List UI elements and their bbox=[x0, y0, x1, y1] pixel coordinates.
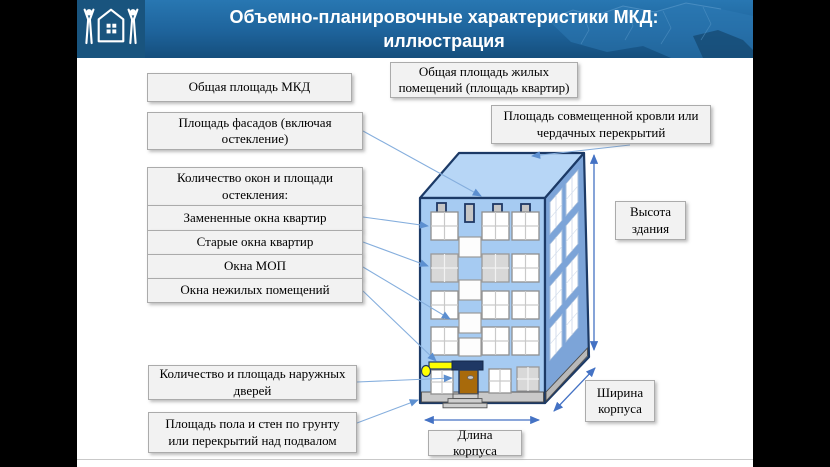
callout-windows-replaced: Замененные окна квартир bbox=[147, 205, 363, 231]
side-windows bbox=[550, 170, 578, 360]
entrance-canopy bbox=[452, 361, 483, 370]
callout-building-height: Высота здания bbox=[615, 201, 686, 240]
callout-windows-common: Окна МОП bbox=[147, 254, 363, 279]
callout-total-area: Общая площадь МКД bbox=[147, 73, 352, 102]
callout-living-area: Общая площадь жилых помещений (площадь к… bbox=[390, 62, 578, 98]
callout-entrance-doors: Количество и площадь наружных дверей bbox=[148, 365, 357, 400]
attic-windows bbox=[437, 203, 530, 222]
callout-roof-area: Площадь совмещенной кровли или чердачных… bbox=[491, 105, 711, 144]
stairwell-windows bbox=[459, 237, 481, 356]
callout-windows-nonresidential: Окна нежилых помещений bbox=[147, 278, 363, 303]
slide-title-line2: иллюстрация bbox=[383, 29, 505, 53]
connector-replaced-windows bbox=[363, 217, 428, 226]
building-side-facade bbox=[545, 153, 589, 403]
connector-old-windows bbox=[363, 242, 428, 266]
connector-roof bbox=[532, 145, 630, 156]
entrance-steps bbox=[443, 394, 487, 408]
callout-body-width: Ширина корпуса bbox=[585, 380, 655, 422]
slide-bottom-edge bbox=[77, 459, 753, 460]
letterbox-left bbox=[0, 0, 77, 467]
slide-title-line1: Объемно-планировочные характеристики МКД… bbox=[230, 5, 659, 29]
front-windows-new bbox=[431, 212, 539, 394]
callout-body-length: Длина корпуса bbox=[428, 430, 522, 456]
connector-ground-floor bbox=[357, 400, 418, 423]
entrance-sign bbox=[429, 362, 453, 369]
callout-windows-header: Количество окон и площади остекления: bbox=[147, 167, 363, 206]
building-roof bbox=[420, 153, 584, 198]
connector-common-windows bbox=[363, 267, 450, 319]
header-banner: Объемно-планировочные характеристики МКД… bbox=[77, 0, 753, 58]
presentation-slide: Объемно-планировочные характеристики МКД… bbox=[0, 0, 830, 467]
logo-house-with-people-icon bbox=[77, 0, 145, 58]
connector-facade bbox=[363, 131, 481, 196]
building-front-facade bbox=[420, 198, 545, 403]
callout-facade-area: Площадь фасадов (включая остекление) bbox=[147, 112, 363, 150]
door-handle bbox=[468, 376, 474, 380]
slide-title: Объемно-планировочные характеристики МКД… bbox=[145, 0, 743, 58]
front-windows-old bbox=[431, 254, 539, 391]
letterbox-right bbox=[753, 0, 830, 467]
connector-nonresidential-windows bbox=[363, 291, 436, 361]
entrance-door bbox=[459, 370, 478, 394]
entrance bbox=[422, 361, 488, 408]
building-plinth-side bbox=[546, 348, 588, 401]
building-outline bbox=[420, 153, 589, 403]
building-plinth-front bbox=[422, 392, 544, 402]
connector-doors bbox=[357, 378, 452, 382]
callout-windows-old: Старые окна квартир bbox=[147, 230, 363, 255]
slide-canvas: Объемно-планировочные характеристики МКД… bbox=[77, 0, 753, 467]
entrance-lamp bbox=[422, 366, 431, 377]
dimension-arrows bbox=[425, 155, 595, 420]
callout-ground-floor: Площадь пола и стен по грунту или перекр… bbox=[148, 412, 357, 453]
